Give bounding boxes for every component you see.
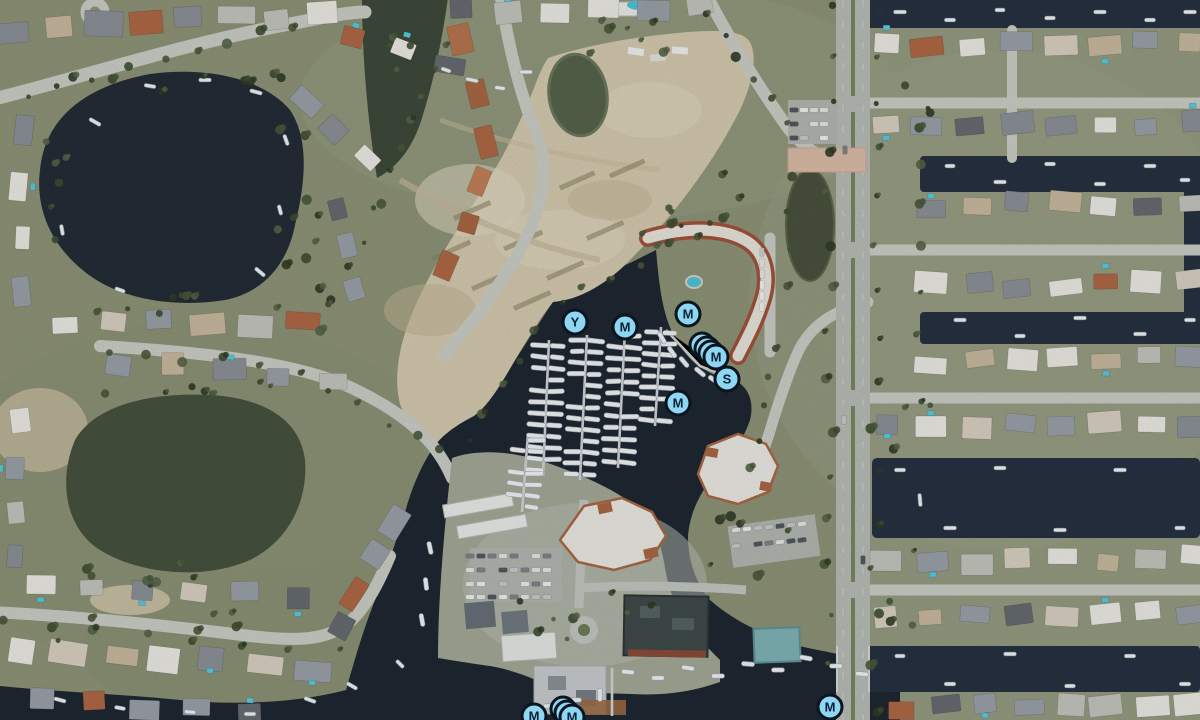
- map-marker-letter: M: [612, 314, 639, 341]
- satellite-imagery: [0, 0, 1200, 720]
- map-marker-letter: S: [714, 366, 741, 393]
- map-marker-letter: M: [675, 301, 702, 328]
- map-marker-letter: Y: [562, 309, 589, 336]
- map-viewport[interactable]: YMMMSMMMM: [0, 0, 1200, 720]
- map-marker-letter: M: [665, 390, 692, 417]
- map-marker-letter: M: [817, 694, 844, 720]
